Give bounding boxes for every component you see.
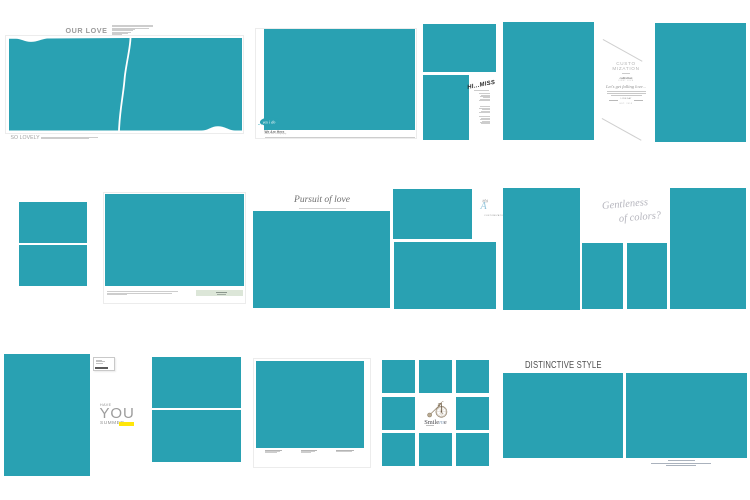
svg-text:yes i do: yes i do: [261, 119, 275, 124]
